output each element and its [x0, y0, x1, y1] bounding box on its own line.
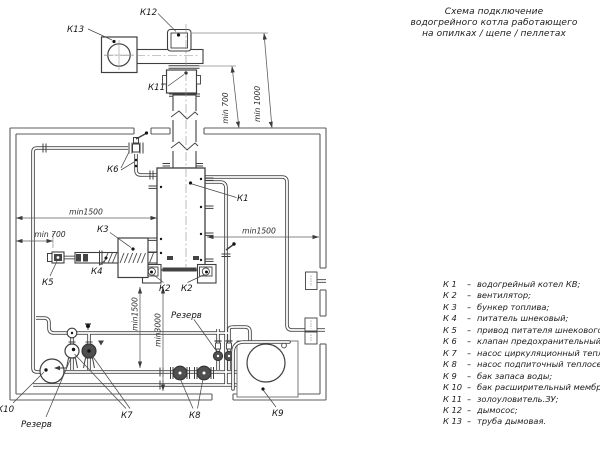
legend-item: К 5–привод питателя шнекового;: [443, 325, 600, 336]
legend-item-part: бак расширительный мембранный: [477, 382, 600, 393]
legend-item-part: –: [467, 382, 477, 393]
legend-item-part: К 13: [443, 416, 467, 427]
legend-item-part: К 6: [443, 336, 467, 347]
label-k7: К7: [121, 411, 133, 421]
label-k9: К9: [272, 409, 284, 419]
safety-valve-k6: [129, 131, 148, 167]
legend-item: К 1–водогрейный котел КВ;: [443, 279, 600, 290]
label-k10: К10: [0, 405, 15, 415]
boiler-k1: [149, 164, 214, 271]
legend-item: К 8–насос подпиточный теплосети: [443, 359, 600, 370]
label-k12: К12: [140, 8, 157, 18]
legend-item-part: насос циркуляционный теплосети: [477, 348, 600, 359]
fan-k2-right: [198, 265, 217, 284]
legend-item-part: золоуловитель.ЗУ;: [477, 394, 558, 405]
legend-item-part: –: [467, 336, 477, 347]
legend-item-part: К 4: [443, 313, 467, 324]
fuel-bunker-k3: [118, 238, 148, 278]
chimney-column: [169, 94, 200, 168]
legend-item-part: –: [467, 290, 477, 301]
legend-item-part: привод питателя шнекового;: [477, 325, 600, 336]
ash-collector-k11: [163, 66, 201, 93]
label-k11: К11: [148, 83, 165, 93]
legend-item-part: К 2: [443, 290, 467, 301]
smoke-exhauster-k12: [168, 30, 192, 52]
legend-item: К 3–бункер топлива;: [443, 302, 600, 313]
legend-item-part: –: [467, 313, 477, 324]
legend-item-part: насос подпиточный теплосети: [477, 359, 600, 370]
legend-item-part: клапан предохранительный;: [477, 336, 600, 347]
legend-item: К 12–дымосос;: [443, 405, 600, 416]
legend-item-part: –: [467, 279, 477, 290]
legend-item-part: К 5: [443, 325, 467, 336]
wall-pipe-tags: [305, 272, 317, 344]
dim-right-min1500: min1500: [242, 227, 276, 236]
dim-top-min1500: min1500: [69, 208, 103, 217]
legend-item: К 11–золоуловитель.ЗУ;: [443, 394, 600, 405]
legend-item-part: К 1: [443, 279, 467, 290]
legend-item-part: бак запаса воды;: [477, 371, 552, 382]
label-k13: К13: [67, 25, 84, 35]
legend-item-part: –: [467, 348, 477, 359]
legend-item-part: К 7: [443, 348, 467, 359]
legend-item-part: К 10: [443, 382, 467, 393]
dim-vert-min1500: min1500: [131, 297, 140, 331]
legend-item-part: К 3: [443, 302, 467, 313]
boiler-room-drawing: min1500 min 700 min1500 min1500 min3000 …: [0, 0, 600, 450]
legend-item-part: –: [467, 394, 477, 405]
legend-item-part: труба дымовая.: [477, 416, 546, 427]
smoke-duct: [137, 50, 203, 64]
legend-item-part: –: [467, 359, 477, 370]
legend-item-part: дымосос;: [477, 405, 518, 416]
expansion-tank-k10: [40, 359, 67, 383]
feeder-drive-k5: [48, 252, 65, 263]
legend-item-part: вентилятор;: [477, 290, 531, 301]
label-k8: К8: [189, 411, 201, 421]
legend-item-part: –: [467, 302, 477, 313]
dim-left-min700: min 700: [34, 230, 65, 239]
label-reserve-bottom: Резерв: [21, 420, 52, 430]
legend-item-part: бункер топлива;: [477, 302, 549, 313]
label-k3: К3: [97, 225, 109, 235]
legend-item-part: –: [467, 371, 477, 382]
label-k4: К4: [91, 267, 103, 277]
legend-item-part: питатель шнековый;: [477, 313, 568, 324]
legend-item: К 10–бак расширительный мембранный: [443, 382, 600, 393]
dim-chimney-min1000: min 1000: [253, 86, 262, 122]
title-line-3: на опилках / щепе / пеллетах: [383, 29, 600, 40]
legend-item-part: К 9: [443, 371, 467, 382]
legend-item-part: К 11: [443, 394, 467, 405]
dim-chimney-min700: min 700: [221, 92, 230, 123]
legend-item: К 9–бак запаса воды;: [443, 371, 600, 382]
legend-item: К 2–вентилятор;: [443, 290, 600, 301]
label-k5: К5: [42, 278, 54, 288]
dim-vert-min3000: min3000: [154, 313, 163, 347]
boiler-base-hatch: [163, 268, 197, 272]
label-k2-right: К2: [181, 284, 193, 294]
legend-item: К 6–клапан предохранительный;: [443, 336, 600, 347]
title-line-1: Схема подключение: [383, 7, 600, 18]
label-reserve-top: Резерв: [171, 311, 202, 321]
legend-item-part: водогрейный котел КВ;: [477, 279, 580, 290]
label-k6: К6: [107, 165, 119, 175]
component-legend: К 1–водогрейный котел КВ;К 2–вентилятор;…: [443, 279, 600, 428]
legend-item-part: –: [467, 405, 477, 416]
drawing-title: Схема подключение водогрейного котла раб…: [383, 7, 600, 40]
legend-item: К 13–труба дымовая.: [443, 416, 600, 427]
legend-item-part: –: [467, 325, 477, 336]
legend-item: К 7–насос циркуляционный теплосети: [443, 348, 600, 359]
water-tank-k9: [237, 341, 298, 397]
legend-item: К 4–питатель шнековый;: [443, 313, 600, 324]
label-k1: К1: [237, 194, 249, 204]
legend-item-part: –: [467, 416, 477, 427]
legend-item-part: К 8: [443, 359, 467, 370]
legend-item-part: К 12: [443, 405, 467, 416]
label-k2-left: К2: [159, 284, 171, 294]
title-line-2: водогрейного котла работающего: [383, 18, 600, 29]
